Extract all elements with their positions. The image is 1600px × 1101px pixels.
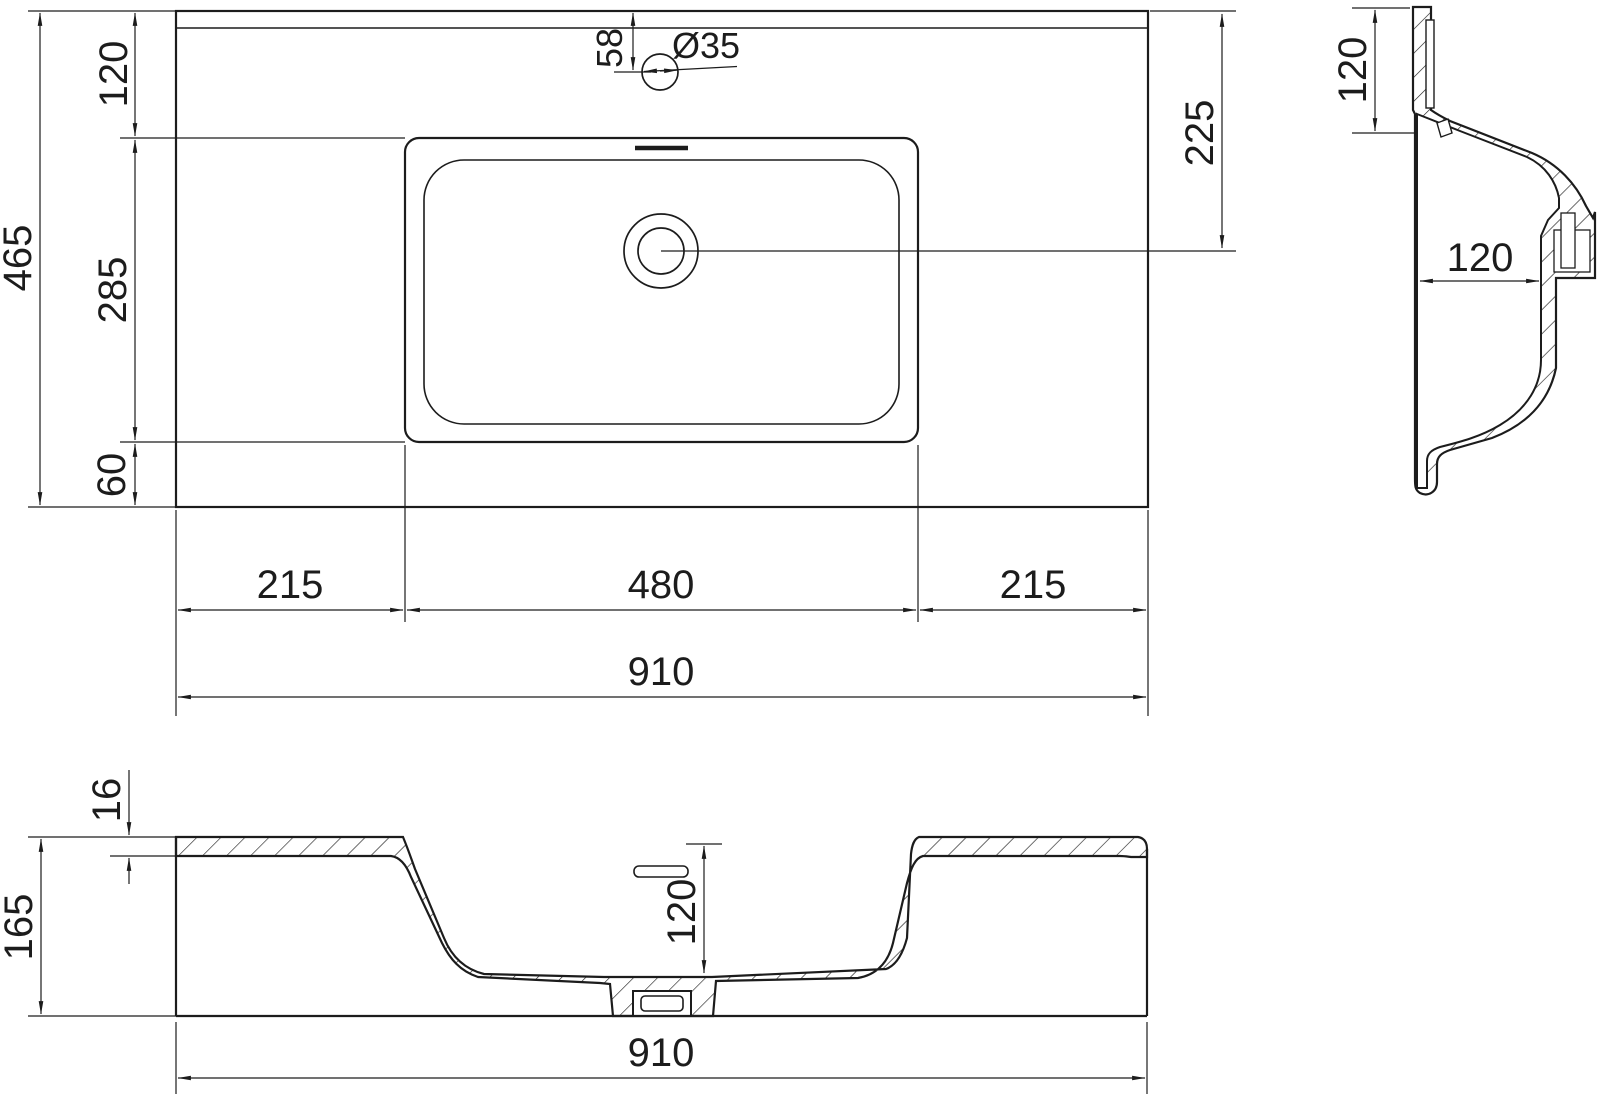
basin-outer-outline bbox=[405, 138, 918, 442]
dim-label-side-bowl-depth: 120 bbox=[1447, 236, 1514, 280]
dim-side-back-ledge: 120 bbox=[1331, 10, 1375, 131]
dim-label-overall-height: 165 bbox=[0, 894, 41, 961]
dim-label-top-thickness: 16 bbox=[85, 778, 129, 823]
dim-label-right-ledge: 215 bbox=[1000, 563, 1067, 607]
overflow-slot-front bbox=[634, 866, 688, 877]
dim-front-ledge: 60 bbox=[90, 444, 135, 505]
drain-slot-front bbox=[641, 996, 683, 1011]
dim-faucet-offset: 58 bbox=[589, 13, 633, 70]
dim-overall-height: 165 bbox=[0, 839, 41, 1014]
dim-label-side-back-ledge: 120 bbox=[1331, 37, 1375, 104]
front-view-extension-lines bbox=[28, 837, 1147, 1094]
back-lip-detail bbox=[1426, 20, 1434, 108]
top-view: 465 120 285 60 58 Ø35 bbox=[0, 11, 1236, 716]
dim-label-faucet-offset: 58 bbox=[589, 28, 630, 68]
dim-width-chain: 215 480 215 bbox=[178, 563, 1146, 610]
technical-drawing: 465 120 285 60 58 Ø35 bbox=[0, 0, 1600, 1101]
dim-overall-width-top: 910 bbox=[178, 650, 1146, 697]
dim-faucet-diameter: Ø35 bbox=[644, 25, 740, 72]
drain-slot-side bbox=[1561, 213, 1575, 268]
dim-label-basin-depth: 285 bbox=[91, 257, 135, 324]
basin-inner-outline bbox=[424, 160, 899, 424]
dim-front-bowl-depth: 120 bbox=[660, 846, 704, 973]
dim-label-left-ledge: 215 bbox=[257, 563, 324, 607]
dim-basin-depth: 285 bbox=[91, 140, 135, 440]
dim-back-ledge: 120 bbox=[92, 13, 136, 136]
dim-label-overall-depth: 465 bbox=[0, 225, 40, 292]
dim-label-faucet-diameter: Ø35 bbox=[672, 25, 740, 66]
dim-label-basin-width: 480 bbox=[628, 563, 695, 607]
dim-label-drain-from-back: 225 bbox=[1178, 100, 1222, 167]
front-section-view: 16 165 120 910 bbox=[0, 770, 1147, 1094]
top-view-dimensions: 465 120 285 60 58 Ø35 bbox=[0, 13, 1222, 697]
dim-overall-width-front: 910 bbox=[178, 1031, 1145, 1078]
dim-drain-from-back: 225 bbox=[1178, 14, 1222, 248]
side-section-view: 120 120 bbox=[1331, 7, 1595, 494]
dim-overall-depth: 465 bbox=[0, 13, 40, 505]
dim-label-front-bowl-depth: 120 bbox=[660, 879, 704, 946]
dim-label-back-ledge: 120 bbox=[92, 41, 136, 108]
side-section-bowl-void bbox=[1417, 114, 1559, 488]
drawing-canvas: 465 120 285 60 58 Ø35 bbox=[0, 0, 1600, 1101]
dim-top-thickness: 16 bbox=[85, 770, 129, 884]
dim-label-overall-width-front: 910 bbox=[628, 1031, 695, 1075]
front-view-dimensions: 16 165 120 910 bbox=[0, 770, 1145, 1078]
countertop-outline bbox=[176, 11, 1148, 507]
dim-label-front-ledge: 60 bbox=[90, 453, 134, 498]
dim-label-overall-width-top: 910 bbox=[628, 650, 695, 694]
